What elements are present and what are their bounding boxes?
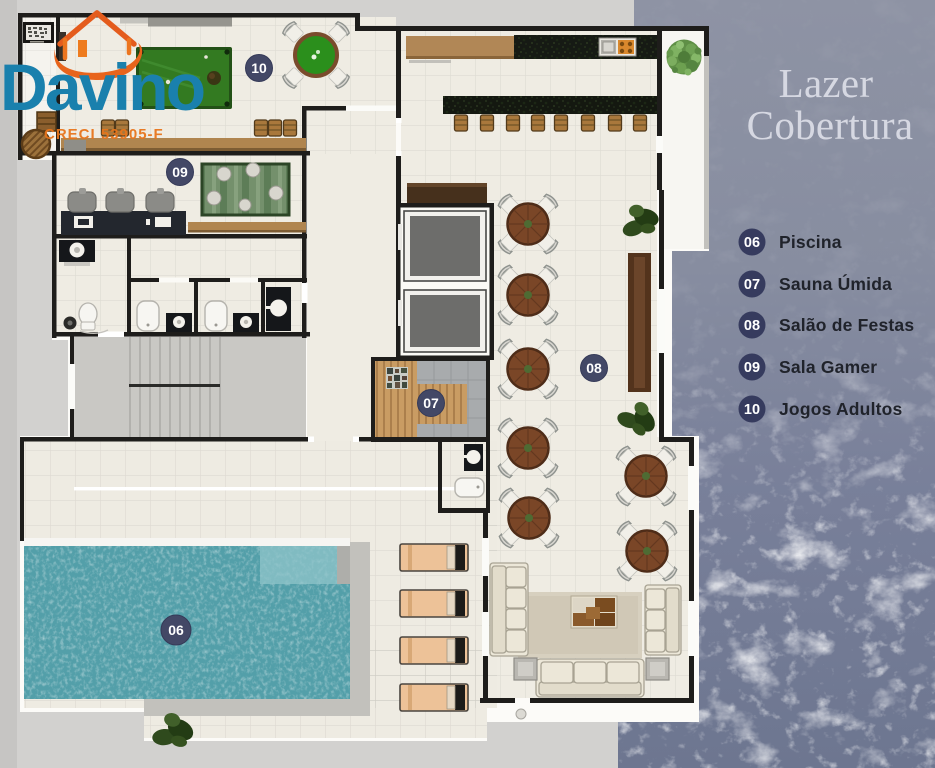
svg-text:07: 07	[744, 277, 760, 293]
svg-text:09: 09	[744, 360, 760, 376]
svg-text:Sala Gamer: Sala Gamer	[779, 357, 877, 377]
svg-text:Salão de Festas: Salão de Festas	[779, 315, 914, 335]
svg-text:CRECI 53905-F: CRECI 53905-F	[44, 126, 164, 143]
svg-text:08: 08	[744, 318, 760, 334]
svg-text:Lazer: Lazer	[779, 60, 874, 106]
svg-text:10: 10	[744, 402, 760, 418]
svg-text:Sauna Úmida: Sauna Úmida	[779, 273, 892, 294]
svg-text:Davino: Davino	[0, 50, 204, 124]
svg-text:06: 06	[168, 622, 184, 638]
svg-text:Cobertura: Cobertura	[747, 102, 914, 148]
svg-text:09: 09	[172, 164, 188, 180]
svg-text:07: 07	[423, 395, 439, 411]
svg-text:06: 06	[744, 235, 760, 251]
svg-text:08: 08	[586, 360, 602, 376]
svg-text:10: 10	[251, 60, 267, 76]
svg-text:Piscina: Piscina	[779, 232, 842, 252]
svg-text:Jogos Adultos: Jogos Adultos	[779, 399, 903, 419]
